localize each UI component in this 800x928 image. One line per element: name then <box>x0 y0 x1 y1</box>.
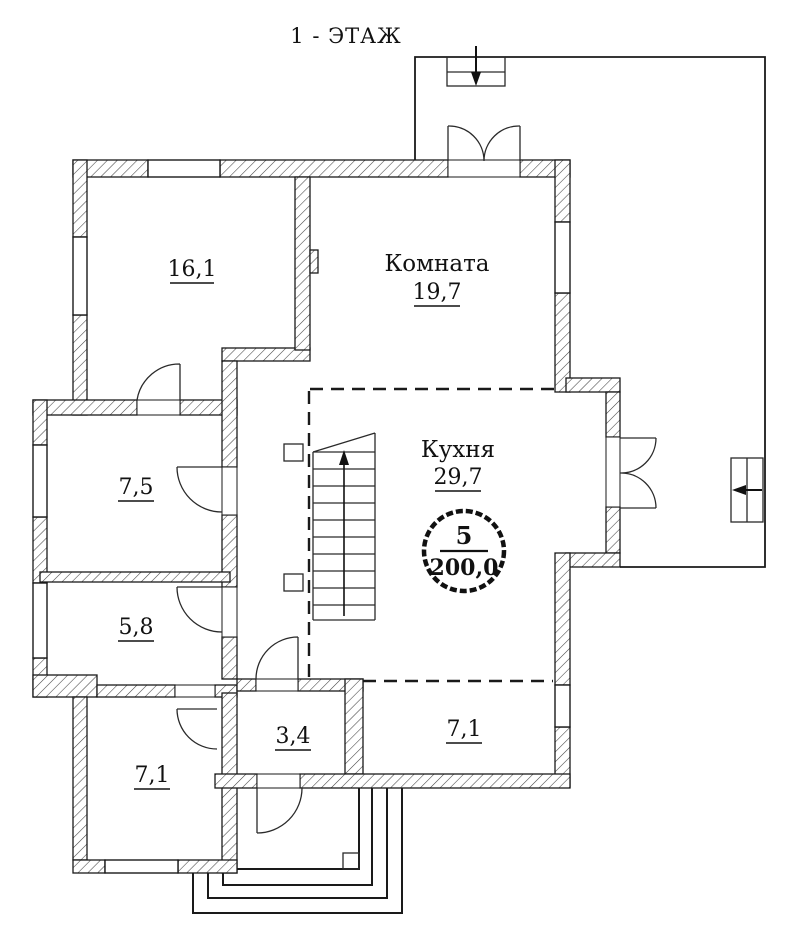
entry-steps-top <box>447 46 505 86</box>
stamp-flat-number: 5 <box>456 521 473 550</box>
walls <box>33 160 620 873</box>
room-label-5-8: 5,8 <box>119 615 154 640</box>
window-5-8-left <box>33 583 47 658</box>
window-16-1-top <box>148 160 220 177</box>
window-16-1-left <box>73 237 87 315</box>
stamp-total-area: 200,0 <box>430 555 499 581</box>
room-area-kuhnya: 29,7 <box>434 465 483 490</box>
floor-plan-page: 1 - ЭТАЖ 16,1 Комната 19,7 Кухня 29,7 7,… <box>0 0 800 928</box>
room-label-3-4: 3,4 <box>276 724 311 749</box>
door-openings <box>137 160 620 788</box>
entry-steps-right <box>731 458 763 522</box>
room-label-16-1: 16,1 <box>168 257 217 282</box>
window-7-1-left-bottom <box>105 860 178 873</box>
entry-arrow-left-icon <box>732 485 746 495</box>
door-swings <box>137 126 656 833</box>
floor-plan-drawing: 1 - ЭТАЖ 16,1 Комната 19,7 Кухня 29,7 7,… <box>0 0 800 928</box>
room-label-7-1-right: 7,1 <box>447 717 482 742</box>
vent-shafts <box>284 444 303 591</box>
room-area-komnata: 19,7 <box>413 280 462 305</box>
room-label-7-1-left: 7,1 <box>135 763 170 788</box>
room-label-7-5: 7,5 <box>119 475 154 500</box>
page-title: 1 - ЭТАЖ <box>290 24 401 48</box>
area-stamp: 5 200,0 <box>424 511 504 591</box>
window-7-1-right <box>555 685 570 727</box>
window-komnata-right <box>555 222 570 293</box>
room-label-komnata: Комната <box>384 251 489 277</box>
room-label-kuhnya: Кухня <box>421 437 495 463</box>
staircase <box>313 433 375 620</box>
entry-arrow-down-icon <box>471 72 481 86</box>
window-7-5-left <box>33 445 47 517</box>
